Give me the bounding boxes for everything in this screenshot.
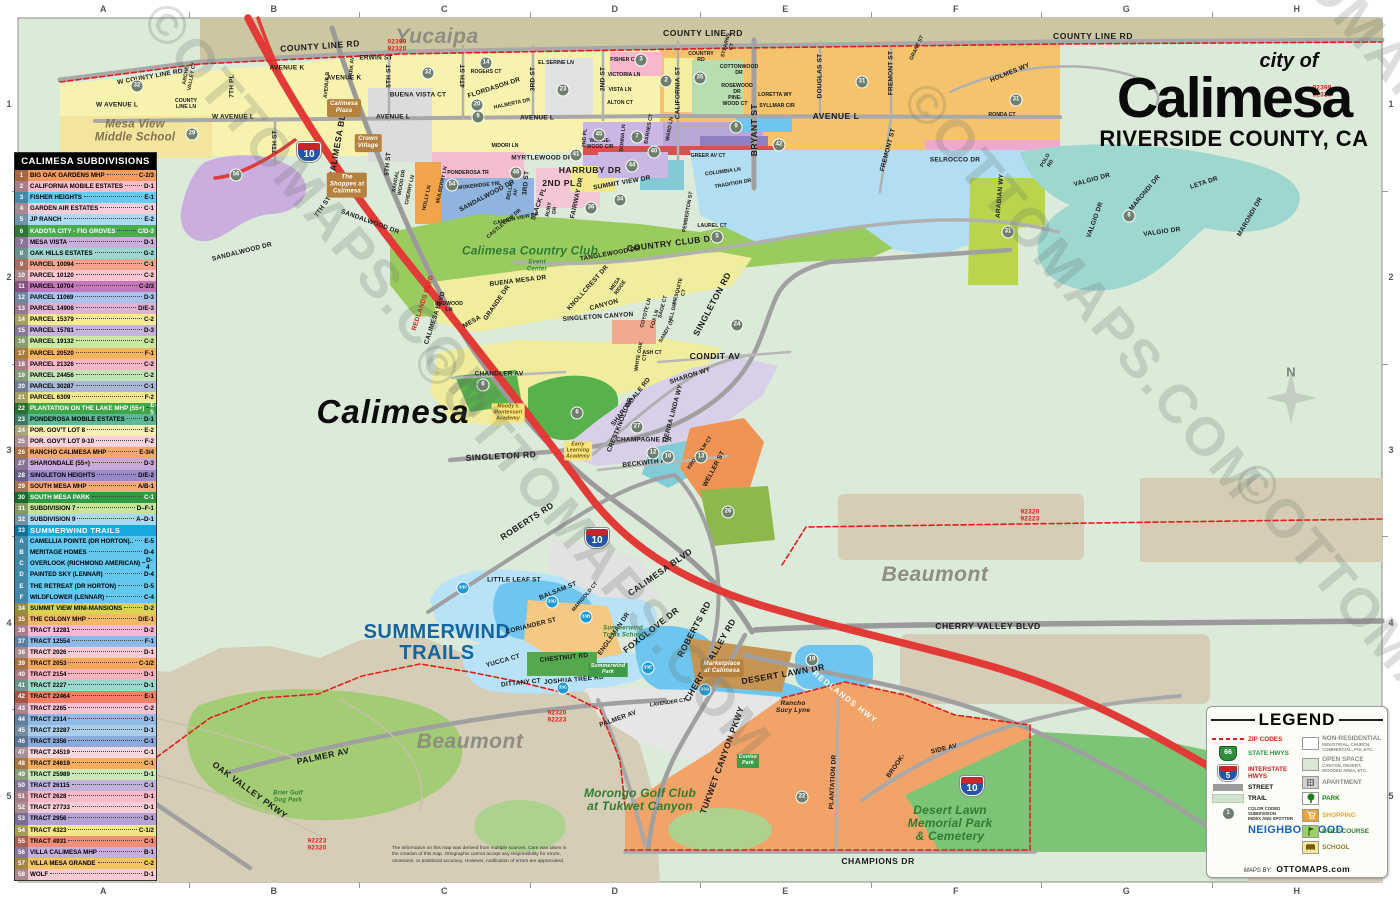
map-label: W AVENUE L (212, 114, 254, 121)
subdivision-spotter: 33C (557, 682, 570, 695)
ruler-col-top: C (441, 4, 448, 14)
subdivision-row-label: TRACT 25989 (28, 771, 70, 778)
map-label: SYLLMAR CIR (759, 103, 794, 109)
subdivision-row: 34SUMMIT VIEW MINI-MANSIONSD-2 (15, 603, 156, 614)
map-label: Desert Lawn Memorial Park & Cemetery (908, 804, 993, 844)
subdivision-row-number: 12 (15, 292, 28, 303)
subdivision-row-label: SUMMERWIND TRAILS (28, 526, 120, 535)
subdivision-row: 52TRACT 27733D-1 (15, 802, 156, 813)
subdivision-row-label: SHARONDALE (55+) (28, 460, 90, 467)
subdivision-row-number: D (15, 569, 28, 580)
subdivision-row-label: SOUTH MESA PARK (28, 494, 90, 501)
ruler-row-left: 4 (6, 618, 11, 628)
legend-label-stack: APARTMENT (1322, 779, 1362, 786)
map-label: AVENUE L (376, 114, 410, 121)
subdivision-row: 19PARCEL 24456C-2 (15, 370, 156, 381)
subdivision-row-number: 50 (15, 780, 28, 791)
trail-swatch-icon (1212, 794, 1244, 803)
subdivision-row-label: TRACT 24619 (28, 760, 70, 767)
subdivision-row: 37TRACT 12554F-1 (15, 636, 156, 647)
map-label: Calimesa Country Club (462, 244, 598, 257)
subdivision-row-grid: D-1 (144, 727, 156, 734)
subdivision-row-grid: D-1 (144, 682, 156, 689)
subdivision-row-grid: C-1/2 (139, 660, 156, 667)
legend-footer-mapsby: MAPS BY: (1244, 868, 1272, 874)
subdivision-row-label: MERITAGE HOMES (28, 549, 87, 556)
map-label: 5TH ST (386, 64, 393, 88)
subdivision-row-label: GARDEN AIR ESTATES (28, 205, 98, 212)
dotted-leader (72, 784, 142, 785)
subdivision-row: 1BIG OAK GARDENS MHPC-2/3 (15, 170, 156, 181)
subdivision-row: ETHE RETREAT (DR HORTON)D-5 (15, 580, 156, 591)
dotted-leader (68, 673, 142, 674)
subdivision-spotter: 22 (796, 791, 809, 804)
dotted-leader (75, 296, 142, 297)
ruler-row-left: 3 (6, 445, 11, 455)
map-label: COTTONWOOD DR (720, 64, 759, 76)
subdivision-row-label: TRACT 2956 (28, 815, 66, 822)
subdivision-row-number: 31 (15, 503, 28, 514)
map-label: Beaumont (882, 563, 989, 587)
subdivision-row-number: 38 (15, 647, 28, 658)
dotted-leader (68, 684, 142, 685)
dotted-leader (146, 407, 148, 408)
legend-label: GOLF COURSE (1322, 828, 1369, 835)
dotted-leader (99, 851, 142, 852)
subdivision-row: 54TRACT 4323C-1/2 (15, 825, 156, 836)
subdivision-row-grid: D-5 (144, 583, 156, 590)
map-label: COUNTRY RD (688, 51, 713, 63)
map-label: BUENA VISTA CT (390, 92, 446, 99)
map-label: Yucaipa (395, 25, 478, 49)
ruler-col-bottom: F (953, 886, 959, 896)
map-label: ERWIN ST (359, 55, 392, 62)
legend-title: LEGEND (1211, 710, 1383, 730)
subdivision-row-label: TRACT 2628 (28, 793, 66, 800)
map-label: ROSEWOOD DR (721, 83, 752, 95)
subdivision-row-number: 3 (15, 192, 28, 203)
ruler-col-top: F (953, 4, 959, 14)
map-label: Calimesa Plaza (327, 99, 361, 117)
subdivision-row-grid: D-1 (144, 649, 156, 656)
dotted-leader (68, 707, 142, 708)
subdivision-spotter: 31 (1002, 226, 1015, 239)
subdivision-spotter: 40 (648, 146, 661, 159)
subdivision-spotter: 24 (731, 319, 744, 332)
subdivision-row-number: 49 (15, 769, 28, 780)
subdivision-row-grid: C-1 (144, 782, 156, 789)
interstate-shield: 10 (585, 528, 609, 548)
subdivision-row: 22PLANTATION ON THE LAKE MHP (55+)E-5 (15, 403, 156, 414)
dotted-leader (69, 241, 142, 242)
subdivision-row-label: TRACT 23287 (28, 727, 70, 734)
subdivision-row-grid: D-1 (144, 416, 156, 423)
subdivision-row: 27SHARONDALE (55+)D-3 (15, 458, 156, 469)
subdivision-row-number: 51 (15, 791, 28, 802)
legend-item-school: SCHOOL (1302, 841, 1383, 854)
interstate-shield-icon: 5 (1218, 765, 1238, 781)
legend-item-shopping: SHOPPING (1302, 809, 1383, 822)
subdivision-row-grid: C-2 (144, 860, 156, 867)
map-label: 2ND ST (600, 67, 607, 91)
subdivision-row-number: A (15, 536, 28, 547)
subdivision-row: 13PARCEL 14906D/E-3 (15, 303, 156, 314)
ruler-col-top: B (271, 4, 278, 14)
subdivision-row-grid: D-1 (144, 804, 156, 811)
map-label: AVENUE L (813, 111, 860, 121)
subdivision-row: 50TRACT 26115C-1 (15, 780, 156, 791)
subdivision-row-grid: F-1 (145, 350, 156, 357)
subdivision-row-label: OAK HILLS ESTATES (28, 250, 93, 257)
subdivision-spotter: 46 (510, 167, 523, 180)
subdivision-row: 12PARCEL 11069D-3 (15, 292, 156, 303)
subdivision-row: FWILDFLOWER (LENNAR)C-4 (15, 592, 156, 603)
map-label: GREER AV CT (691, 153, 726, 159)
legend-item-trail: TRAIL (1211, 794, 1302, 803)
dotted-leader (89, 551, 142, 552)
subdivision-spotter: 33F (457, 582, 470, 595)
legend-item-zip: ZIP CODES (1211, 735, 1302, 743)
dotted-leader (68, 718, 142, 719)
subdivision-row: 24POR. GOV'T LOT 8E-2 (15, 425, 156, 436)
subdivision-row: 18PARCEL 21326C-2 (15, 359, 156, 370)
tick-top (1041, 12, 1042, 18)
dotted-leader (92, 496, 142, 497)
legend-footer: MAPS BY: OTTOMAPS.com (1211, 859, 1383, 877)
subdivision-row-label: TRACT 12554 (28, 638, 70, 645)
subdivision-row: 51TRACT 2628D-1 (15, 791, 156, 802)
subdivision-spotter: 6 (477, 379, 490, 392)
subdivision-row: 3FISHER HEIGHTSE-1 (15, 192, 156, 203)
subdivision-row-number: 24 (15, 425, 28, 436)
legend-label: TRAIL (1248, 795, 1267, 802)
ruler-col-top: G (1123, 4, 1130, 14)
subdivision-row: 36TRACT 12281D-2 (15, 625, 156, 636)
subdivision-spotter: 32 (131, 80, 144, 93)
dotted-leader (135, 540, 142, 541)
ruler-col-top: A (100, 4, 107, 14)
subdivision-row-label: TRACT 2227 (28, 682, 66, 689)
legend-left-column: ZIP CODES66STATE HWYS5INTERSTATE HWYSSTR… (1211, 732, 1302, 857)
legend-swatch (1302, 776, 1319, 789)
subdivision-spotter: 33B (580, 611, 593, 624)
street-swatch-icon (1213, 784, 1243, 791)
subdivision-row-grid: C-2 (144, 316, 156, 323)
subdivision-spotter: 14 (480, 57, 493, 70)
dotted-leader (76, 307, 136, 308)
legend-label: STATE HWYS (1248, 750, 1289, 757)
dotted-leader (76, 274, 142, 275)
dotted-leader (72, 751, 142, 752)
ruler-col-top: E (782, 4, 788, 14)
dotted-leader (107, 174, 137, 175)
map-label: RONDA CT (988, 112, 1015, 118)
tick-top (189, 12, 190, 18)
subdivision-row-grid: D-1 (144, 716, 156, 723)
subdivision-spotter: 44 (626, 160, 639, 173)
map-label: MYRTLEWOOD DR (511, 155, 572, 162)
subdivision-row-grid: B-1 (144, 849, 156, 856)
subdivision-row-label: PARCEL 6309 (28, 394, 70, 401)
subdivision-spotter: 12 (647, 447, 660, 460)
tick-bottom (871, 882, 872, 888)
subdivision-row-label: WOLF (28, 871, 48, 878)
subdivision-row-label: OVERLOOK (RICHMOND AMERICAN) (28, 560, 140, 567)
subdivision-row-label: SINGLETON HEIGHTS (28, 472, 95, 479)
subdivision-row-grid: D/E-3 (138, 305, 156, 312)
subdivision-row: DPAINTED SKY (LENNAR)D-4 (15, 569, 156, 580)
legend-item-open-space: OPEN SPACECANYON, DESERT, WOODED AREA, E… (1302, 756, 1383, 773)
subdivision-row: 42TRACT 22464E-1 (15, 691, 156, 702)
subdivision-row-label: PARCEL 11069 (28, 294, 73, 301)
legend-footer-brand: OTTOMAPS.com (1276, 864, 1350, 874)
subdivision-row-number: 41 (15, 680, 28, 691)
subdivision-row-number: 32 (15, 514, 28, 525)
subdivision-index-rows: 1BIG OAK GARDENS MHPC-2/32CALIFORNIA MOB… (15, 170, 156, 880)
subdivision-spotter: 5 (711, 231, 724, 244)
subdivision-row-number: 42 (15, 691, 28, 702)
dotted-leader (64, 218, 143, 219)
subdivision-row-label: VILLA CALIMESA MHP (28, 849, 97, 856)
dotted-leader (72, 806, 142, 807)
subdivision-row-grid: D-3 (144, 327, 156, 334)
map-label: PINE- WOOD CT (722, 95, 747, 107)
legend-item-non-residential: NON-RESIDENTIALINDUSTRIAL, CHURCH, COMME… (1302, 735, 1383, 752)
subdivision-row: 40TRACT 2154D-1 (15, 669, 156, 680)
dotted-leader (100, 207, 142, 208)
tick-bottom (359, 882, 360, 888)
map-label: CONDIT AV (690, 351, 741, 361)
ruler-col-bottom: G (1123, 886, 1130, 896)
subdivision-row-number: 22 (15, 403, 28, 414)
dotted-leader (92, 462, 142, 463)
subdivision-row-grid: C-1 (144, 838, 156, 845)
map-title: city of Calimesa RIVERSIDE COUNTY, CA (1088, 50, 1380, 152)
map-label: MIDORI LN (491, 143, 518, 149)
subdivision-row-number: E (15, 580, 28, 591)
subdivision-spotter: 31 (1010, 94, 1023, 107)
legend-icon-interstate: 5 (1211, 765, 1245, 781)
dotted-leader (127, 418, 142, 419)
legend-label-stack: SHOPPING (1322, 812, 1356, 819)
subdivision-row-grid: C-1 (144, 383, 156, 390)
subdivision-row: 56VILLA CALIMESA MHPB-1 (15, 847, 156, 858)
subdivision-row-grid: E-5 (144, 538, 156, 545)
subdivision-row-label: PARCEL 10094 (28, 261, 74, 268)
map-label: CHANDLER AV (475, 371, 524, 378)
tick-right (1382, 536, 1388, 537)
subdivision-row-label: CAMELLIA POINTE (DR HORTON).. (28, 538, 133, 545)
subdivision-row-number: 46 (15, 736, 28, 747)
subdivision-row-label: BIG OAK GARDENS MHP (28, 172, 105, 179)
map-label: Morongo Golf Club at Tukwet Canyon (584, 787, 696, 813)
ruler-col-bottom: A (100, 886, 107, 896)
subdivision-row-grid: F-2 (145, 394, 156, 401)
subdivision-row-grid: E-3/4 (139, 449, 156, 456)
subdivision-row: 4GARDEN AIR ESTATESC-1 (15, 203, 156, 214)
legend-item-golf-course: GOLF COURSE (1302, 825, 1383, 838)
subdivision-row-number: 54 (15, 825, 28, 836)
subdivision-spotter: 6 (571, 407, 584, 420)
dotted-leader (72, 629, 142, 630)
subdivision-row-grid: C-2 (144, 705, 156, 712)
subdivision-row-grid: D/E-1 (138, 616, 156, 623)
subdivision-row-grid: C-1 (144, 494, 156, 501)
subdivision-row-grid: C-4 (144, 594, 156, 601)
dotted-leader (88, 618, 136, 619)
subdivision-row: COVERLOOK (RICHMOND AMERICAN)D-4 (15, 558, 156, 569)
subdivision-row-grid: C-2/3 (139, 283, 156, 290)
dotted-leader (72, 729, 142, 730)
subdivision-row-grid: D-1 (144, 671, 156, 678)
park-tree-icon (1306, 793, 1316, 804)
subdivision-row: 2CALIFORNIA MOBILE ESTATESD-1 (15, 181, 156, 192)
tick-right (1382, 364, 1388, 365)
ruler-col-bottom: D (612, 886, 619, 896)
map-label: ROGERS CT (471, 69, 502, 75)
subdivision-row-number: 6 (15, 225, 28, 236)
subdivision-row-number: 36 (15, 625, 28, 636)
subdivision-row: 21PARCEL 6309F-2 (15, 392, 156, 403)
subdivision-row-label: PARCEL 21326 (28, 361, 74, 368)
subdivision-row-label: SUBDIVISION 7 (28, 505, 75, 512)
dotted-leader (72, 762, 142, 763)
subdivision-spotter: 29 (186, 128, 199, 141)
subdivision-row-number: 25 (15, 436, 28, 447)
dotted-leader (76, 385, 142, 386)
subdivision-row-number: 2 (15, 181, 28, 192)
shopping-cart-icon (1306, 810, 1316, 820)
dotted-leader (77, 507, 134, 508)
tick-top (1212, 12, 1213, 18)
subdivision-row-label: TRACT 4323 (28, 827, 66, 834)
subdivision-row-label: CALIFORNIA MOBILE ESTATES (28, 183, 123, 190)
map-label: Crown Village (355, 134, 382, 152)
map-label: The Shoppes at Calimesa (327, 173, 367, 198)
legend-swatch (1302, 758, 1319, 771)
dotted-leader (95, 252, 142, 253)
subdivision-row-grid: C-2 (144, 338, 156, 345)
zipcode-label: 92320 92223 (1020, 509, 1039, 524)
map-label: 3RD ST (530, 67, 537, 91)
map-label: FREMONT ST (888, 51, 895, 95)
subdivision-row-number: 28 (15, 470, 28, 481)
subdivision-row: 28SINGLETON HEIGHTSD/E-2 (15, 470, 156, 481)
subdivision-row-grid: A/B-1 (138, 483, 156, 490)
legend-label-stack: SCHOOL (1322, 844, 1349, 851)
subdivision-row-label: TRACT 4931 (28, 838, 66, 845)
subdivision-row-grid: E-2 (144, 427, 156, 434)
dotted-leader (84, 196, 142, 197)
subdivision-row-grid: D-1 (144, 793, 156, 800)
subdivision-row-label: MESA VISTA (28, 239, 67, 246)
dotted-leader (68, 795, 142, 796)
map-label: VISTA LN (608, 87, 631, 93)
subdivision-row: 31SUBDIVISION 7D–F-1 (15, 503, 156, 514)
subdivision-row-number: 1 (15, 170, 28, 181)
subdivision-row-number: 11 (15, 281, 28, 292)
subdivision-row-label: VILLA MESA GRANDE (28, 860, 96, 867)
subdivision-row-number: 16 (15, 336, 28, 347)
map-label: CALIFORNIA ST (675, 67, 682, 120)
subdivision-row: 38TRACT 2026D-1 (15, 647, 156, 658)
subdivision-row-label: TRACT 2356 (28, 738, 66, 745)
subdivision-row-number: 37 (15, 636, 28, 647)
subdivision-row-number: 5 (15, 214, 28, 225)
subdivision-row: 49TRACT 25989D-1 (15, 769, 156, 780)
subdivision-row-number: F (15, 592, 28, 603)
subdivision-spotter: 32 (422, 67, 435, 80)
subdivision-row-label: SUBDIVISION 9 (28, 516, 75, 523)
subdivision-row-label: TRACT 27733 (28, 804, 70, 811)
legend-sublabel: INDUSTRIAL, CHURCH, COMMERCIAL, POI, ETC… (1322, 742, 1381, 752)
subdivision-row: 20PARCEL 30287C-1 (15, 381, 156, 392)
subdivision-row-label: TRACT 2154 (28, 671, 66, 678)
map-label: COUNTY LINE RD (1053, 31, 1133, 41)
subdivision-spotter: 27 (631, 421, 644, 434)
map-label: ASH CT (642, 350, 661, 356)
tick-bottom (189, 882, 190, 888)
subdivision-row-grid: C/D-3 (138, 228, 156, 235)
subdivision-row: 15PARCEL 15781D-3 (15, 325, 156, 336)
subdivision-row: 45TRACT 23287D-1 (15, 725, 156, 736)
subdivision-row-number: 53 (15, 813, 28, 824)
subdivision-row-number: 35 (15, 614, 28, 625)
subdivision-row-grid: D-3 (144, 294, 156, 301)
zipcode-label: 92399 92320 (387, 39, 406, 54)
legend-item-street: STREET (1211, 784, 1302, 791)
legend-label: OPEN SPACE (1322, 756, 1367, 763)
subdivision-row-label: PARCEL 30287 (28, 383, 74, 390)
dotted-leader (117, 230, 135, 231)
subdivision-row-number: 14 (15, 314, 28, 325)
spotter-sample-icon: 1 (1222, 807, 1235, 820)
map-label: Mesa View Middle School (95, 118, 176, 143)
subdivision-row-label: PARCEL 15379 (28, 316, 74, 323)
subdivision-index: CALIMESA SUBDIVISIONS 1BIG OAK GARDENS M… (14, 152, 157, 881)
subdivision-row: 55TRACT 4931C-1 (15, 836, 156, 847)
dotted-leader (76, 263, 142, 264)
golfer-icon (1306, 826, 1315, 837)
legend-item-neigh: NEIGHBORHOOD (1211, 824, 1302, 836)
subdivision-row-number: 7 (15, 237, 28, 248)
map-label: CHAMPAGNE DR (616, 437, 672, 444)
subdivision-row-label: PARCEL 10120 (28, 272, 74, 279)
subdivision-row: 17PARCEL 20520F-1 (15, 348, 156, 359)
legend-label: APARTMENT (1322, 779, 1362, 786)
subdivision-spotter: 2 (660, 75, 673, 88)
legend-label: ZIP CODES (1248, 736, 1282, 743)
zip-dash-icon (1212, 735, 1244, 743)
map-label: DOUGLAS ST (817, 54, 824, 99)
subdivision-row-number: 8 (15, 248, 28, 259)
subdivision-row-label: PLANTATION ON THE LAKE MHP (55+) (28, 405, 144, 412)
subdivision-spotter: 3 (635, 54, 648, 67)
subdivision-spotter: 45 (593, 129, 606, 142)
subdivision-row: 57VILLA MESA GRANDEC-2 (15, 858, 156, 869)
map-label: Summerwind Trails School (603, 625, 643, 638)
ruler-col-bottom: B (271, 886, 278, 896)
subdivision-row-label: SOUTH MESA MHP (28, 483, 87, 490)
map-frame: YucaipaBeaumontBeaumontCalimesaSUMMERWIN… (0, 0, 1400, 900)
interstate-shield: 10 (297, 142, 321, 162)
legend-label-stack: PARK (1322, 795, 1340, 802)
subdivision-row-grid: D/E-2 (138, 472, 156, 479)
subdivision-spotter: 8 (1123, 210, 1136, 223)
subdivision-row: 33SUMMERWIND TRAILS (15, 525, 156, 536)
subdivision-row-label: JP RANCH (28, 216, 62, 223)
subdivision-row-number: 4 (15, 203, 28, 214)
